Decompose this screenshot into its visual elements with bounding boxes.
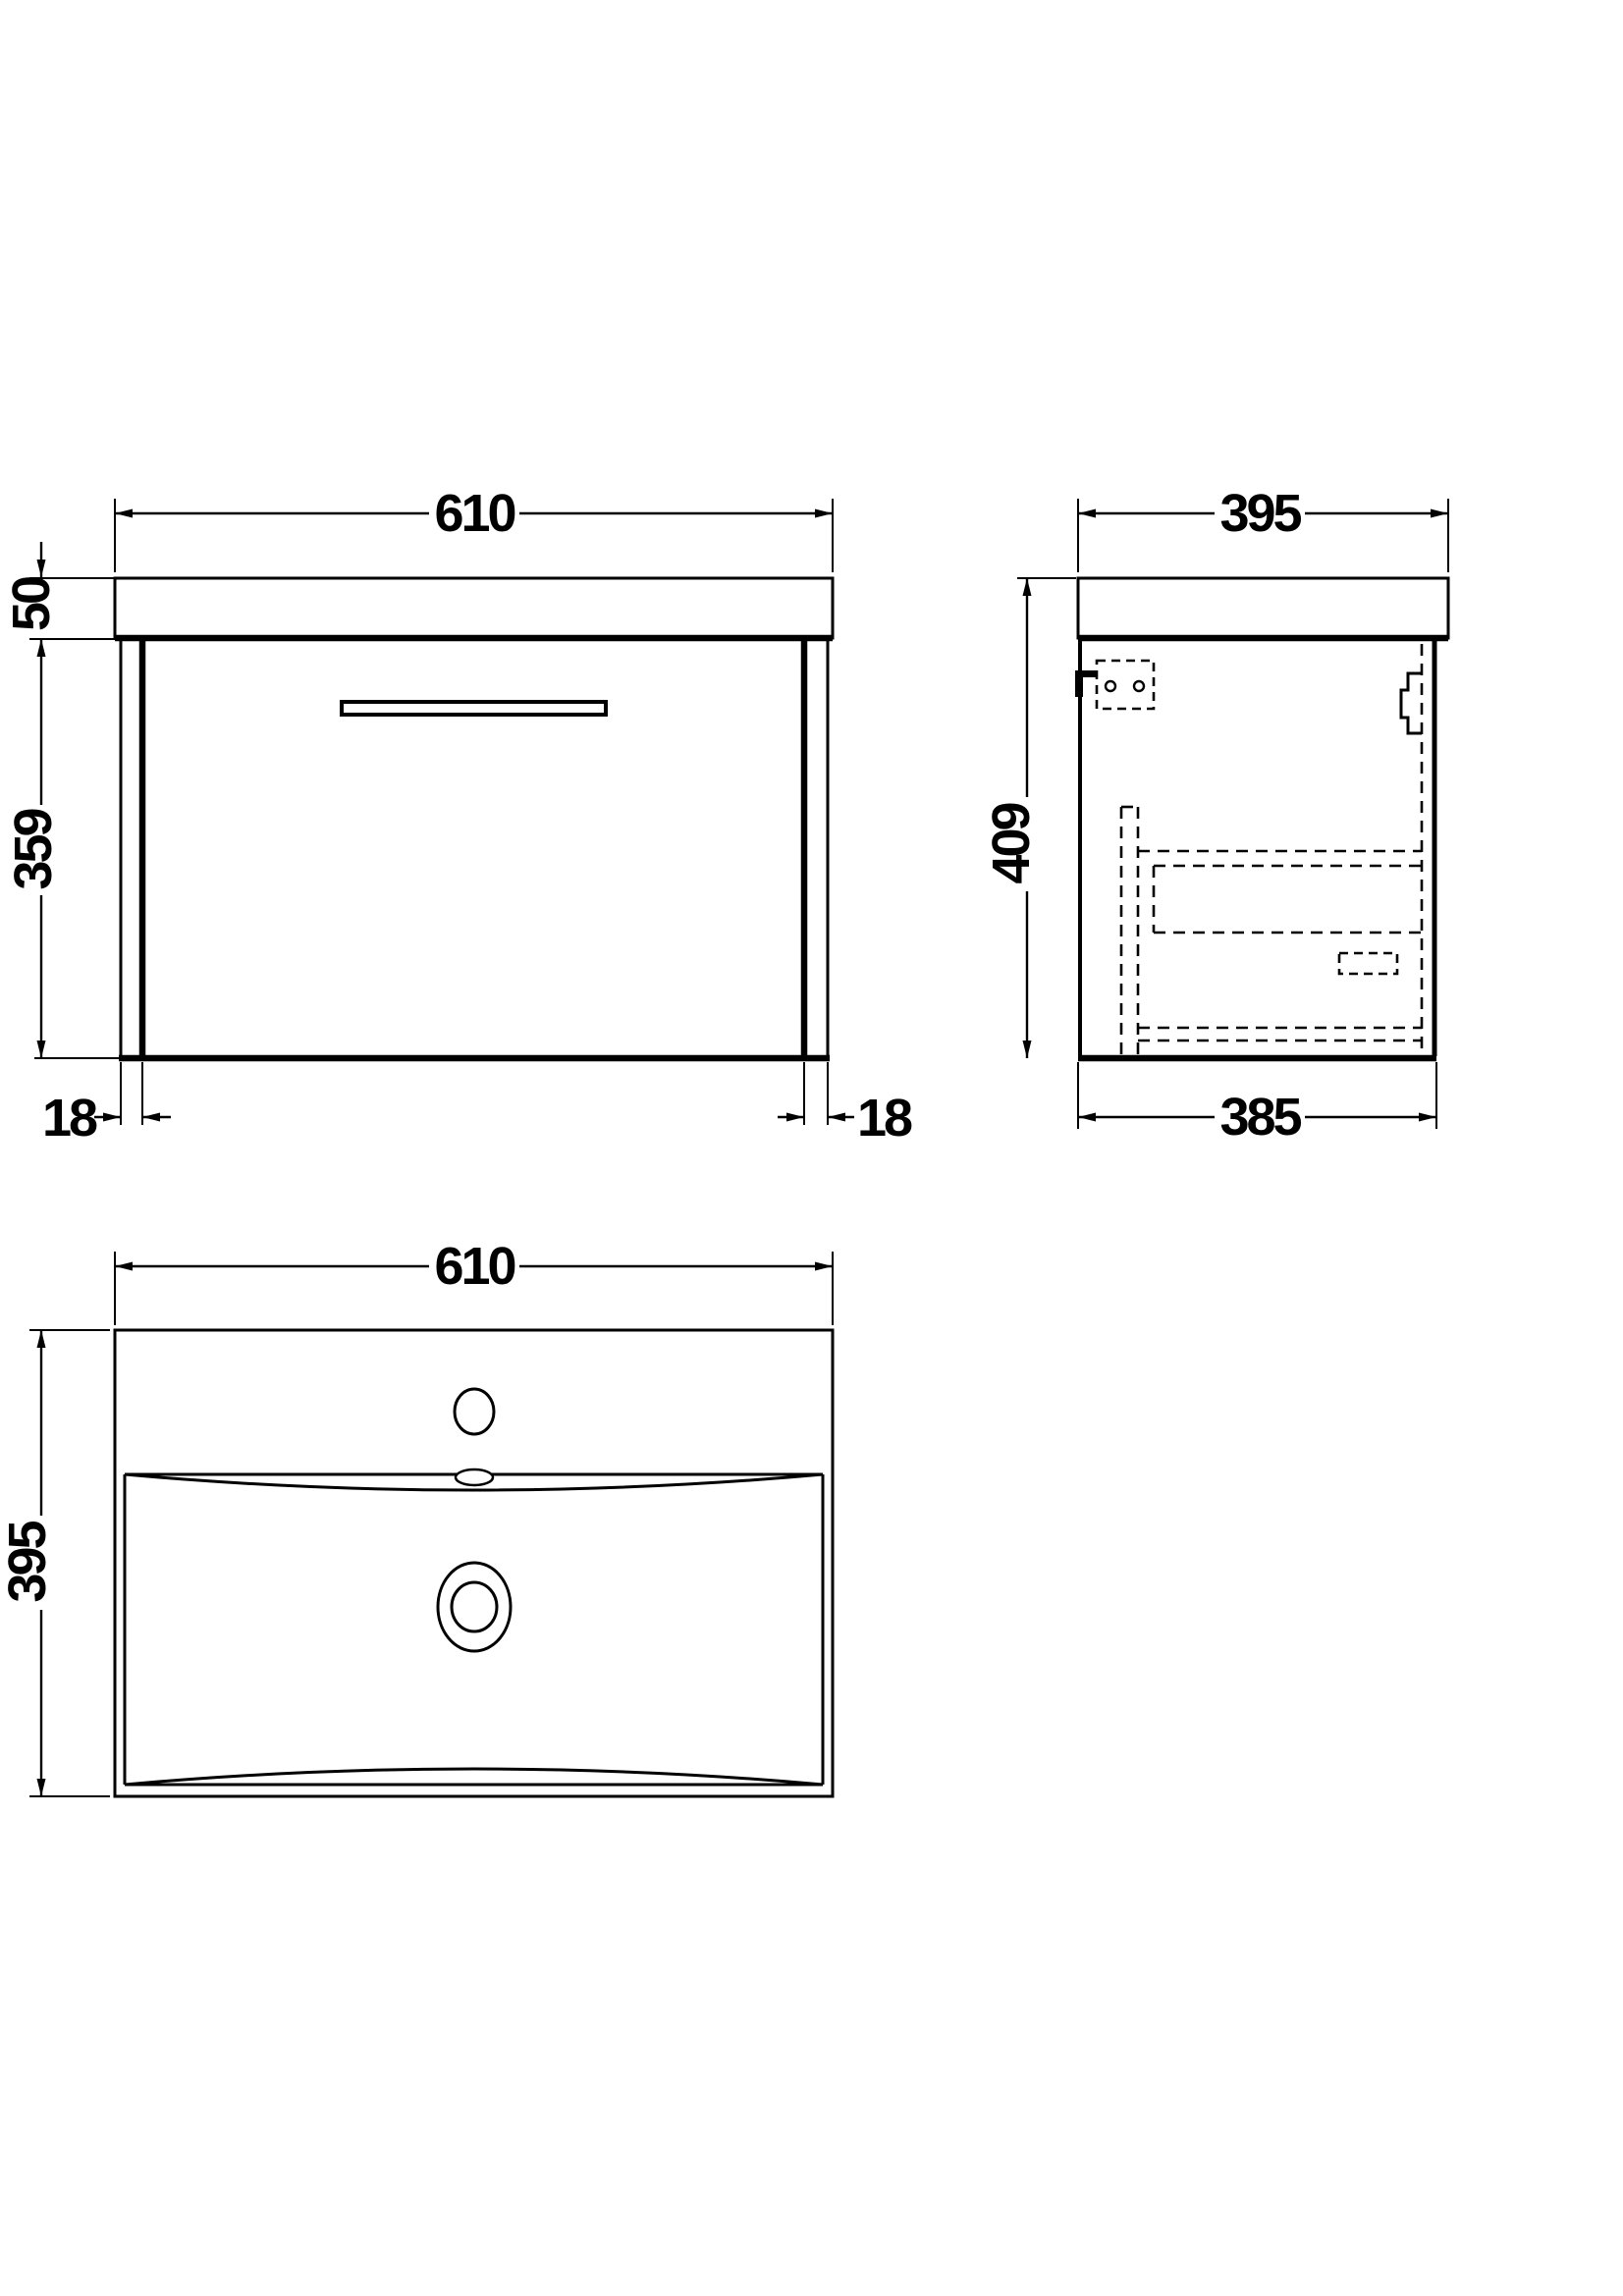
side-wall-bracket [1075,661,1154,709]
basin-depth-label: 395 [0,1521,57,1602]
basin-depth-dimension: 395 [0,1330,110,1796]
front-cabinet-dimension: 359 [4,639,119,1058]
tap-hole [455,1389,494,1434]
side-worktop [1078,578,1448,638]
front-drawer-handle [342,702,606,715]
front-right-panel-dimension: 18 [778,1062,912,1148]
basin-view: 610 395 [0,1237,833,1796]
technical-drawing: 610 50 359 18 [0,0,1623,2296]
front-left-panel-label: 18 [42,1089,97,1148]
side-depth-dimension: 385 [1078,1062,1436,1147]
front-worktop-label: 50 [2,577,61,631]
drain-inner-hole [452,1582,497,1631]
front-cabinet-label: 359 [4,808,63,889]
front-width-label: 610 [434,484,514,543]
front-right-panel-label: 18 [857,1089,912,1148]
side-wall-hook-horizontal [1075,670,1097,677]
bowl-front-slope-curve [125,1769,823,1785]
drawing-sheet: 610 50 359 18 [0,0,1623,2296]
side-runner-bracket [1401,673,1422,733]
drawer-softclose-unit [1339,953,1397,974]
front-view: 610 50 359 18 [2,484,912,1148]
side-width-dimension: 395 [1078,484,1448,572]
side-drawer-internals [1121,807,1422,1056]
overflow-hole [456,1469,493,1485]
basin-width-label: 610 [434,1237,514,1296]
front-worktop [115,578,833,638]
front-width-dimension: 610 [115,484,833,572]
side-width-label: 395 [1219,484,1301,543]
drain-outer-ring [438,1563,511,1651]
side-depth-label: 385 [1219,1088,1301,1147]
front-left-panel-dimension: 18 [42,1062,171,1148]
basin-width-dimension: 610 [115,1237,833,1325]
front-worktop-dimension: 50 [2,542,115,639]
side-height-label: 409 [982,802,1041,883]
basin-inner-bowl [125,1469,823,1785]
side-view: 395 409 385 [982,484,1448,1147]
side-height-dimension: 409 [982,578,1076,1058]
